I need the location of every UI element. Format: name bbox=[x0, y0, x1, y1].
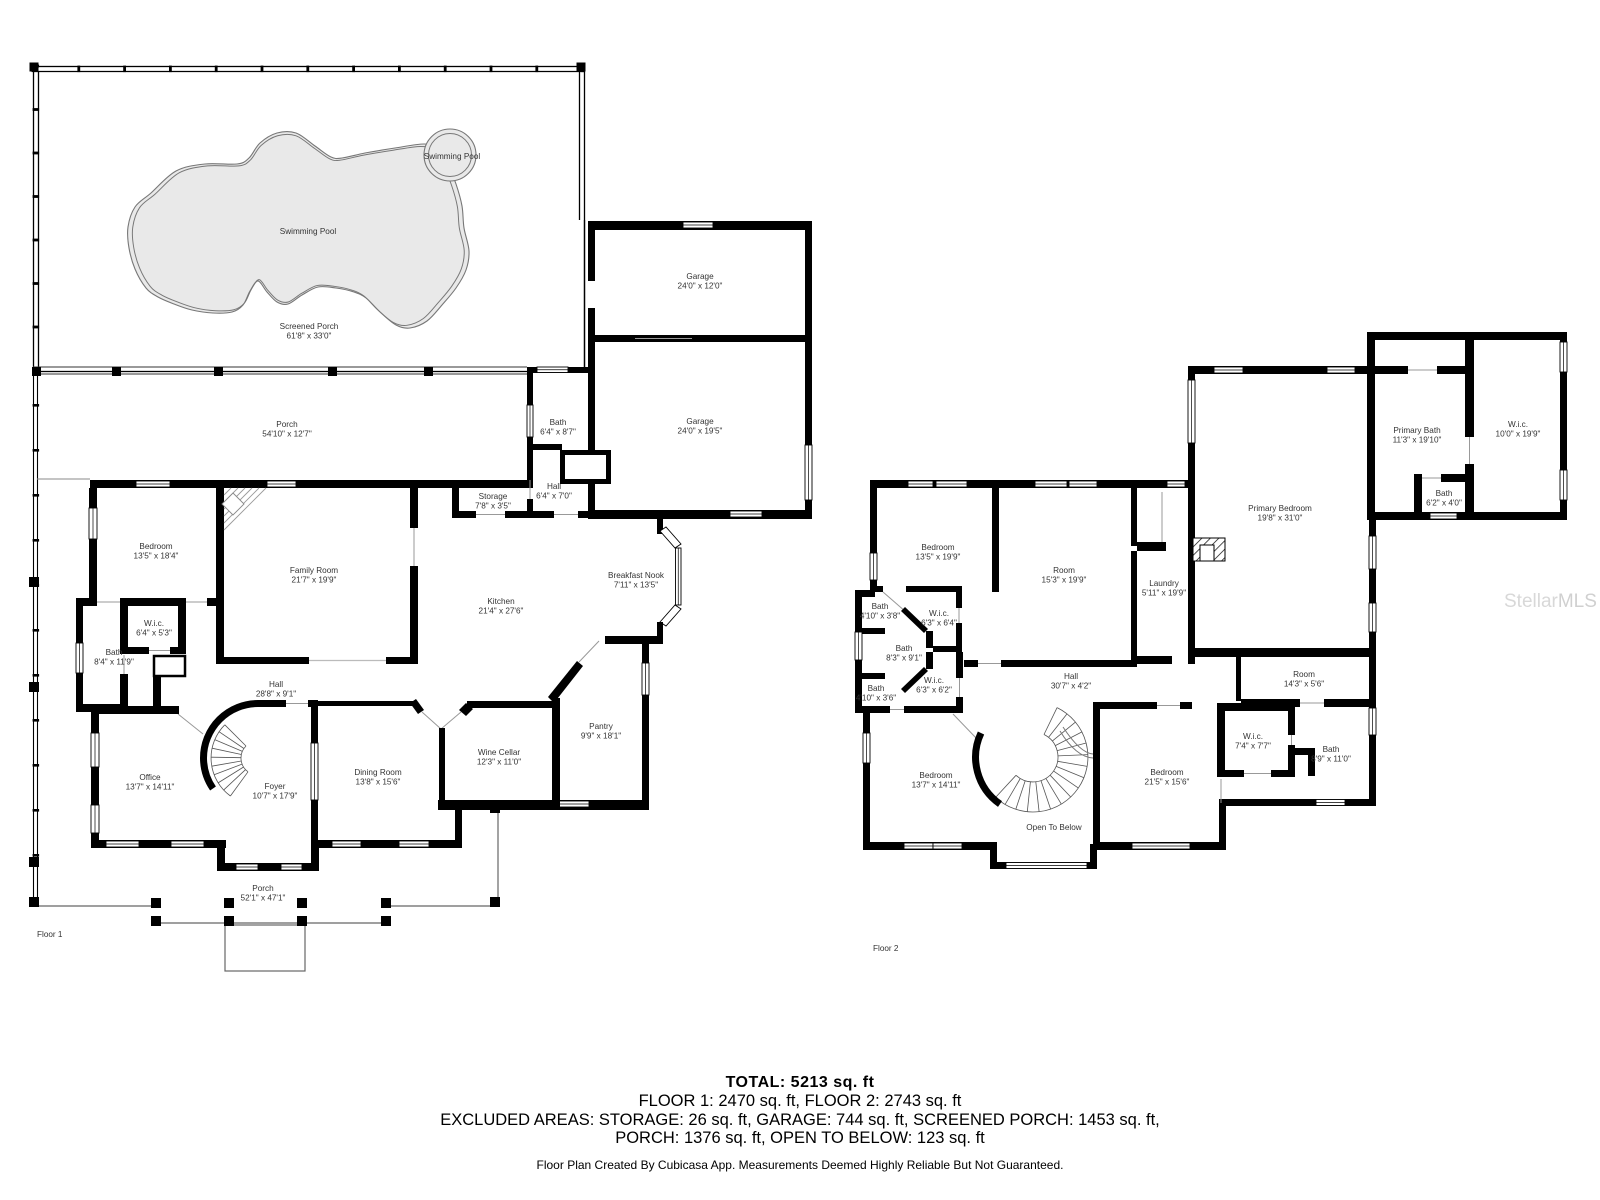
svg-text:4'10" x 3'6": 4'10" x 3'6" bbox=[856, 694, 896, 703]
svg-text:Porch: Porch bbox=[276, 420, 298, 429]
svg-text:11'3" x 19'10": 11'3" x 19'10" bbox=[1393, 436, 1442, 445]
svg-text:Bath: Bath bbox=[868, 684, 885, 693]
svg-text:PORCH: 1376 sq. ft, OPEN TO BE: PORCH: 1376 sq. ft, OPEN TO BELOW: 123 s… bbox=[615, 1129, 985, 1147]
svg-text:6'4" x 8'7": 6'4" x 8'7" bbox=[540, 428, 576, 437]
svg-text:8'9" x 11'0": 8'9" x 11'0" bbox=[1311, 755, 1351, 764]
svg-text:Bedroom: Bedroom bbox=[919, 771, 952, 780]
svg-text:Kitchen: Kitchen bbox=[487, 597, 515, 606]
svg-text:6'3" x 6'2": 6'3" x 6'2" bbox=[916, 686, 952, 695]
svg-text:Garage: Garage bbox=[686, 417, 714, 426]
svg-text:13'7" x 14'11": 13'7" x 14'11" bbox=[912, 781, 961, 790]
svg-text:24'0" x 12'0": 24'0" x 12'0" bbox=[678, 282, 723, 291]
svg-text:Bedroom: Bedroom bbox=[1150, 768, 1183, 777]
svg-text:Bath: Bath bbox=[550, 418, 567, 427]
svg-text:13'5" x 18'4": 13'5" x 18'4" bbox=[134, 552, 179, 561]
svg-text:Bath: Bath bbox=[896, 644, 913, 653]
svg-text:FLOOR 1: 2470 sq. ft, FLOOR 2:: FLOOR 1: 2470 sq. ft, FLOOR 2: 2743 sq. … bbox=[639, 1092, 962, 1110]
svg-text:6'4" x 7'0": 6'4" x 7'0" bbox=[536, 492, 572, 501]
svg-text:Bath: Bath bbox=[1323, 745, 1340, 754]
svg-text:StellarMLS: StellarMLS bbox=[1504, 591, 1597, 612]
svg-text:Bedroom: Bedroom bbox=[921, 543, 954, 552]
svg-text:Bath: Bath bbox=[106, 648, 123, 657]
svg-text:Floor 2: Floor 2 bbox=[873, 944, 899, 953]
svg-text:Breakfast Nook: Breakfast Nook bbox=[608, 571, 665, 580]
svg-text:Bath: Bath bbox=[1436, 489, 1453, 498]
svg-text:Floor 1: Floor 1 bbox=[37, 930, 63, 939]
svg-text:W.i.c.: W.i.c. bbox=[924, 676, 944, 685]
svg-text:9'9" x 18'1": 9'9" x 18'1" bbox=[581, 732, 621, 741]
svg-text:Bath: Bath bbox=[872, 602, 889, 611]
svg-text:Open To Below: Open To Below bbox=[1026, 823, 1081, 832]
svg-text:Wine Cellar: Wine Cellar bbox=[478, 748, 521, 757]
svg-text:Storage: Storage bbox=[479, 492, 508, 501]
svg-text:W.i.c.: W.i.c. bbox=[144, 619, 164, 628]
svg-text:Floor Plan Created By Cubicasa: Floor Plan Created By Cubicasa App. Meas… bbox=[537, 1158, 1064, 1172]
svg-text:W.i.c.: W.i.c. bbox=[1508, 420, 1528, 429]
svg-text:Room: Room bbox=[1053, 566, 1075, 575]
svg-text:Foyer: Foyer bbox=[265, 782, 286, 791]
svg-text:Hall: Hall bbox=[269, 680, 283, 689]
svg-text:30'7" x 4'2": 30'7" x 4'2" bbox=[1051, 682, 1091, 691]
svg-text:5'11" x 19'9": 5'11" x 19'9" bbox=[1142, 589, 1186, 598]
svg-text:21'4" x 27'6": 21'4" x 27'6" bbox=[479, 607, 524, 616]
svg-text:6'2" x 4'0": 6'2" x 4'0" bbox=[1426, 499, 1462, 508]
svg-text:Laundry: Laundry bbox=[1149, 579, 1179, 588]
svg-text:8'3" x 9'1": 8'3" x 9'1" bbox=[886, 654, 922, 663]
svg-text:Family Room: Family Room bbox=[290, 566, 338, 575]
svg-text:54'10" x 12'7": 54'10" x 12'7" bbox=[262, 430, 312, 439]
svg-text:8'4" x 11'9": 8'4" x 11'9" bbox=[94, 658, 134, 667]
svg-text:52'1" x 47'1": 52'1" x 47'1" bbox=[241, 894, 286, 903]
svg-text:21'7" x 19'9": 21'7" x 19'9" bbox=[292, 576, 337, 585]
svg-text:7'11" x 13'5": 7'11" x 13'5" bbox=[614, 581, 658, 590]
svg-text:14'3" x 5'6": 14'3" x 5'6" bbox=[1284, 680, 1324, 689]
svg-text:Primary Bedroom: Primary Bedroom bbox=[1248, 504, 1312, 513]
svg-text:Primary Bath: Primary Bath bbox=[1393, 426, 1441, 435]
svg-text:13'5" x 19'9": 13'5" x 19'9" bbox=[916, 553, 961, 562]
svg-text:12'3" x 11'0": 12'3" x 11'0" bbox=[477, 758, 521, 767]
svg-text:24'0" x 19'5": 24'0" x 19'5" bbox=[678, 427, 723, 436]
svg-text:13'8" x 15'6": 13'8" x 15'6" bbox=[356, 778, 401, 787]
svg-text:61'8" x 33'0": 61'8" x 33'0" bbox=[287, 332, 332, 341]
svg-text:19'8" x 31'0": 19'8" x 31'0" bbox=[1258, 514, 1303, 523]
svg-text:W.i.c.: W.i.c. bbox=[1243, 732, 1263, 741]
svg-text:Swimming Pool: Swimming Pool bbox=[280, 227, 337, 236]
svg-text:W.i.c.: W.i.c. bbox=[929, 609, 949, 618]
svg-text:Bedroom: Bedroom bbox=[139, 542, 172, 551]
svg-text:10'7" x 17'9": 10'7" x 17'9" bbox=[253, 792, 298, 801]
svg-text:Garage: Garage bbox=[686, 272, 714, 281]
svg-text:Screened Porch: Screened Porch bbox=[280, 322, 339, 331]
svg-text:13'7" x 14'11": 13'7" x 14'11" bbox=[126, 783, 175, 792]
svg-text:Swimming Pool: Swimming Pool bbox=[424, 152, 481, 161]
svg-text:Dining Room: Dining Room bbox=[354, 768, 402, 777]
svg-text:Porch: Porch bbox=[252, 884, 274, 893]
svg-text:6'4" x 5'3": 6'4" x 5'3" bbox=[136, 629, 172, 638]
svg-text:10'0" x 19'9": 10'0" x 19'9" bbox=[1496, 430, 1541, 439]
svg-text:EXCLUDED AREAS: STORAGE: 26 sq: EXCLUDED AREAS: STORAGE: 26 sq. ft, GARA… bbox=[440, 1111, 1160, 1129]
svg-text:TOTAL: 5213 sq. ft: TOTAL: 5213 sq. ft bbox=[726, 1074, 875, 1091]
svg-text:4'10" x 3'8": 4'10" x 3'8" bbox=[860, 612, 900, 621]
svg-text:7'4" x 7'7": 7'4" x 7'7" bbox=[1235, 742, 1271, 751]
svg-text:6'3" x 6'4": 6'3" x 6'4" bbox=[921, 619, 957, 628]
svg-text:28'8" x 9'1": 28'8" x 9'1" bbox=[256, 690, 296, 699]
svg-text:Pantry: Pantry bbox=[589, 722, 614, 731]
svg-text:Hall: Hall bbox=[1064, 672, 1078, 681]
svg-text:Hall: Hall bbox=[547, 482, 561, 491]
svg-text:Room: Room bbox=[1293, 670, 1315, 679]
svg-text:7'8" x 3'5": 7'8" x 3'5" bbox=[475, 502, 511, 511]
svg-text:Office: Office bbox=[139, 773, 161, 782]
svg-text:21'5" x 15'6": 21'5" x 15'6" bbox=[1145, 778, 1190, 787]
svg-text:15'3" x 19'9": 15'3" x 19'9" bbox=[1042, 576, 1087, 585]
